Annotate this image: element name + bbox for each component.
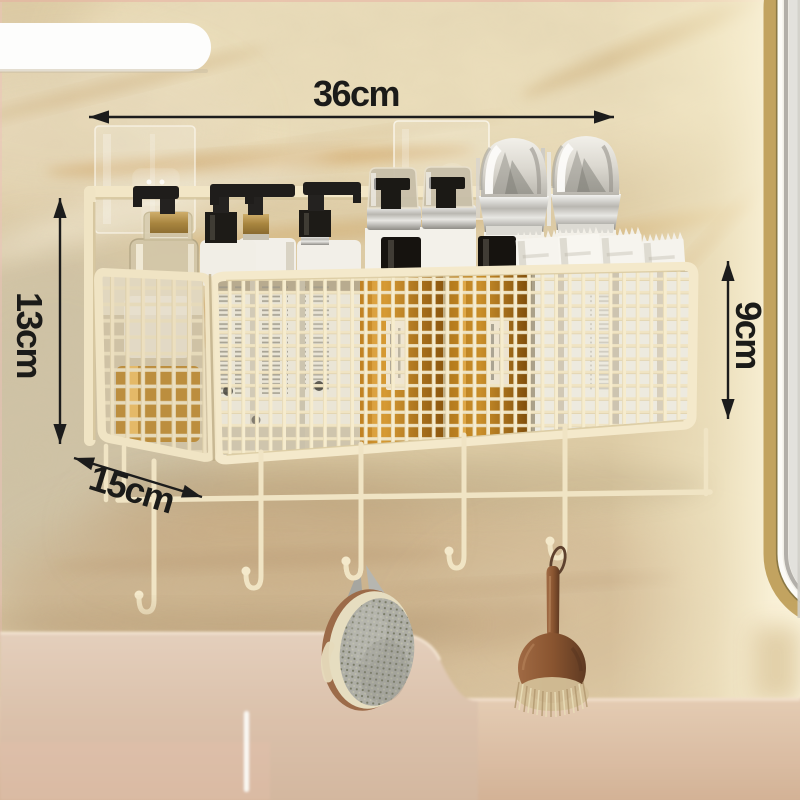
svg-text:36cm: 36cm [313, 73, 399, 114]
svg-text:13cm: 13cm [9, 292, 50, 378]
svg-text:9cm: 9cm [728, 301, 769, 369]
